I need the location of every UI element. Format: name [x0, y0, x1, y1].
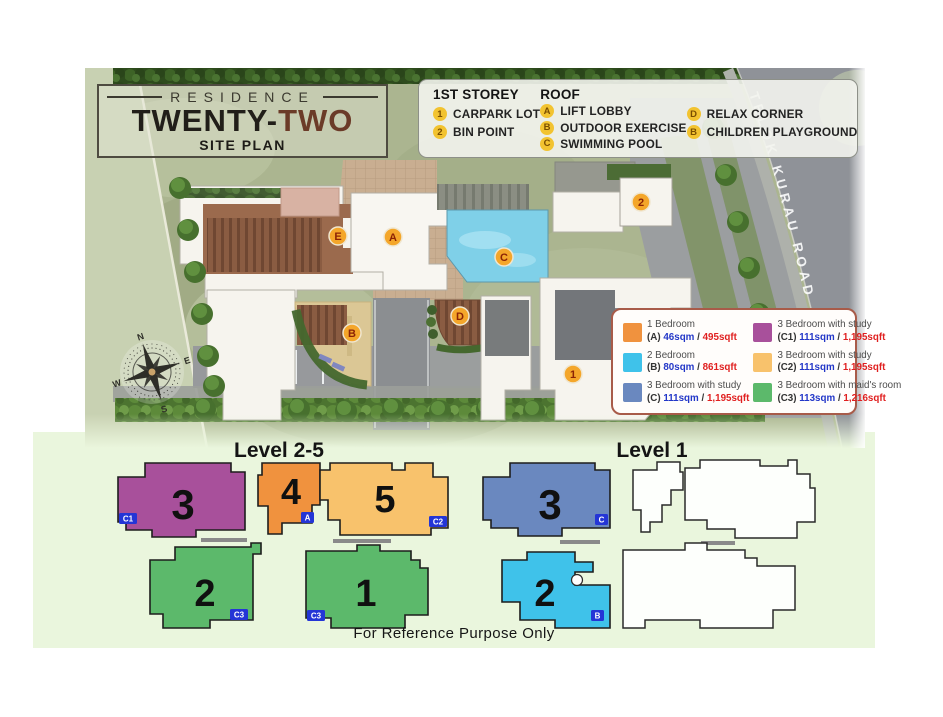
- legend-item-swimming-pool: C SWIMMING POOL: [540, 136, 686, 152]
- swatch-3-bedroom-maid: [753, 383, 772, 402]
- unit-legend-item-c3: 3 Bedroom with maid's room (C3) 113sqm /…: [753, 379, 901, 407]
- unit-number: 2: [194, 573, 215, 615]
- unit-legend-item-c2: 3 Bedroom with study (C2) 111sqm / 1,195…: [753, 348, 901, 376]
- unit-number: 1: [355, 573, 376, 615]
- unit-code: (C3): [777, 393, 796, 404]
- svg-text:C3: C3: [311, 612, 322, 621]
- unit-code: (B): [647, 362, 661, 373]
- unit-legend-item-c: 3 Bedroom with study (C) 111sqm / 1,195s…: [623, 379, 749, 407]
- unit-name: 3 Bedroom with maid's room: [777, 380, 901, 393]
- marker-carpark-1: 1: [564, 365, 582, 383]
- legend-title-roof: ROOF: [540, 87, 686, 103]
- svg-text:A: A: [389, 232, 397, 244]
- unit-sqm: 111sqm: [799, 332, 834, 343]
- svg-text:2: 2: [638, 197, 644, 209]
- project-title-primary: TWENTY-: [132, 103, 279, 138]
- legend-item-carpark-lot: 1 CARPARK LOT: [433, 105, 540, 123]
- unit-code-badge: C: [595, 514, 608, 525]
- svg-text:C: C: [500, 252, 508, 264]
- stair-circle: [572, 575, 583, 586]
- legend-title-spacer: [687, 87, 858, 105]
- unit-name: 3 Bedroom with study: [777, 319, 885, 332]
- svg-text:B: B: [348, 328, 356, 340]
- swatch-1-bedroom: [623, 323, 642, 342]
- marker-outdoor-exercise-b: B: [343, 324, 361, 342]
- unit-legend-item-a: 1 Bedroom (A) 46sqm / 495sqft: [623, 318, 749, 346]
- unit-sqft: 1,195sqft: [843, 332, 885, 343]
- legend-item-children-playground: B CHILDREN PLAYGROUND: [687, 123, 858, 141]
- legend-label: RELAX CORNER: [707, 107, 804, 121]
- unit-legend-item-b: 2 Bedroom (B) 80sqm / 861sqft: [623, 348, 749, 376]
- marker-bin-point-2: 2: [632, 193, 650, 211]
- disclaimer-text: For Reference Purpose Only: [33, 625, 875, 642]
- legend-item-outdoor-exercise: B OUTDOOR EXERCISE: [540, 120, 686, 136]
- svg-text:1: 1: [570, 369, 576, 381]
- unit-sqm: 80sqm: [663, 362, 694, 373]
- floor-plans: Level 2-5 Level 1 3 C1 4 A 5 C2 2 C3: [33, 430, 875, 648]
- unit-sqm: 113sqm: [799, 393, 835, 404]
- unit-name: 3 Bedroom with study: [777, 350, 885, 363]
- badge-c-icon: C: [540, 137, 554, 151]
- unit-code: (C1): [777, 332, 796, 343]
- pool-pergola: [437, 184, 529, 210]
- legend-label: LIFT LOBBY: [560, 104, 631, 118]
- gray-roof: [555, 290, 615, 360]
- unit-sqft: 495sqft: [703, 332, 737, 343]
- legend-label: BIN POINT: [453, 125, 514, 139]
- unit-name: 2 Bedroom: [647, 350, 737, 363]
- unit-sqm: 111sqm: [799, 362, 834, 373]
- unit-number: 2: [534, 573, 555, 615]
- level-1-plan: 3 C 2 B: [483, 460, 815, 628]
- unit-name: 3 Bedroom with study: [647, 380, 749, 393]
- legend-title-1st-storey: 1ST STOREY: [433, 87, 540, 105]
- legend-item-bin-point: 2 BIN POINT: [433, 123, 540, 141]
- project-title: TWENTY-TWO: [99, 105, 386, 137]
- svg-text:C3: C3: [234, 611, 245, 620]
- unsold-unit-outline: [623, 543, 795, 628]
- level-2-5-title: Level 2-5: [234, 439, 324, 462]
- legend-column-first-storey: 1ST STOREY 1 CARPARK LOT 2 BIN POINT: [433, 87, 540, 152]
- badge-b2-icon: B: [687, 125, 701, 139]
- unit-code-badge: B: [591, 610, 604, 621]
- svg-text:B: B: [595, 612, 601, 621]
- marker-swimming-pool-c: C: [495, 248, 513, 266]
- floor-plans-svg: Level 2-5 Level 1 3 C1 4 A 5 C2 2 C3: [33, 430, 875, 648]
- unit-number: 3: [171, 481, 194, 528]
- svg-text:C2: C2: [433, 518, 444, 527]
- legend-column-roof: ROOF A LIFT LOBBY B OUTDOOR EXERCISE C S…: [540, 87, 686, 152]
- corridor-connectors: [201, 538, 735, 545]
- unit-sqft: 1,216sqft: [843, 393, 885, 404]
- unit-sqft: 1,195sqft: [843, 362, 885, 373]
- unit-code-badge: C2: [429, 516, 447, 527]
- roof-section: [281, 188, 339, 216]
- swatch-2-bedroom: [623, 353, 642, 372]
- unit-code: (A): [647, 332, 661, 343]
- svg-text:C: C: [599, 516, 605, 525]
- unit-sqft: 861sqft: [703, 362, 737, 373]
- unit-code: (C): [647, 393, 661, 404]
- badge-b-icon: B: [540, 121, 554, 135]
- marker-outdoor-deck-e: E: [329, 227, 347, 245]
- gray-roof: [485, 300, 529, 356]
- legend-column-roof-2: D RELAX CORNER B CHILDREN PLAYGROUND: [687, 87, 858, 152]
- badge-2-icon: 2: [433, 125, 447, 139]
- unit-name: 1 Bedroom: [647, 319, 737, 332]
- level-1-title: Level 1: [616, 439, 688, 462]
- unit-number: 3: [538, 481, 561, 528]
- unit-type-legend: 1 Bedroom (A) 46sqm / 495sqft 3 Bedroom …: [611, 308, 857, 415]
- unit-code-badge: C1: [119, 513, 137, 524]
- swatch-3-bedroom-study-c: [623, 383, 642, 402]
- swatch-3-bedroom-study-c2: [753, 353, 772, 372]
- unit-sqm: 46sqm: [663, 332, 694, 343]
- project-logo: RESIDENCE TWENTY-TWO SITE PLAN: [97, 84, 388, 158]
- unit-sqm: 111sqm: [663, 393, 698, 404]
- svg-text:A: A: [305, 514, 311, 523]
- unsold-unit-outline: [633, 462, 683, 532]
- project-title-accent: TWO: [278, 103, 353, 138]
- unit-code-badge: A: [301, 512, 314, 523]
- unit-number: 5: [374, 479, 395, 521]
- unit-legend-item-c1: 3 Bedroom with study (C1) 111sqm / 1,195…: [753, 318, 901, 346]
- swatch-3-bedroom-study-c1: [753, 323, 772, 342]
- badge-a-icon: A: [540, 104, 554, 118]
- pergola: [207, 218, 322, 272]
- site-plan-page: { "logo": { "brand": "RESIDENCE", "title…: [0, 0, 943, 717]
- badge-d-icon: D: [687, 107, 701, 121]
- legend-label: SWIMMING POOL: [560, 137, 662, 151]
- unit-sqft: 1,195sqft: [707, 393, 749, 404]
- marker-relax-corner-d: D: [451, 307, 469, 325]
- level-2-5-plan: 3 C1 4 A 5 C2 2 C3 1 C3: [118, 463, 448, 628]
- unsold-unit-outline: [685, 460, 815, 538]
- unit-code-badge: C3: [230, 609, 248, 620]
- svg-text:D: D: [456, 311, 464, 323]
- legend-item-lift-lobby: A LIFT LOBBY: [540, 103, 686, 119]
- legend-label: CARPARK LOT: [453, 107, 540, 121]
- marker-lift-lobby-a: A: [384, 228, 402, 246]
- building-northeast: [553, 162, 672, 232]
- unit-code-badge: C3: [307, 610, 325, 621]
- unit-number: 4: [281, 471, 301, 512]
- legend-item-relax-corner: D RELAX CORNER: [687, 105, 858, 123]
- legend-label: OUTDOOR EXERCISE: [560, 121, 686, 135]
- svg-text:E: E: [334, 231, 341, 243]
- page-title: SITE PLAN: [99, 137, 386, 153]
- badge-1-icon: 1: [433, 107, 447, 121]
- unit-code: (C2): [777, 362, 796, 373]
- svg-text:C1: C1: [123, 515, 134, 524]
- legend-label: CHILDREN PLAYGROUND: [707, 125, 858, 139]
- amenities-legend-panel: 1ST STOREY 1 CARPARK LOT 2 BIN POINT ROO…: [418, 79, 858, 158]
